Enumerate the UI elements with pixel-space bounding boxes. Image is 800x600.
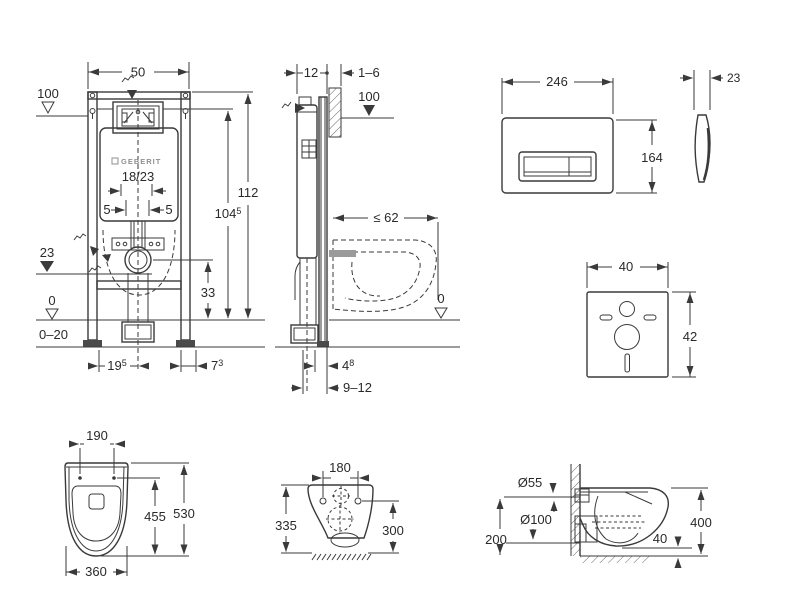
- floor-section: [580, 557, 650, 564]
- frame-side-linework: [275, 88, 460, 392]
- level-zero-side: 0: [435, 291, 447, 318]
- brand-label: GEBERIT: [121, 157, 161, 166]
- installation-diagram: GEBERIT 50 100 18/23 5 5: [0, 0, 800, 600]
- dim-plate-depth: 23: [680, 70, 741, 110]
- svg-text:195: 195: [107, 358, 126, 373]
- svg-text:18/23: 18/23: [122, 169, 155, 184]
- svg-text:530: 530: [173, 506, 195, 521]
- dim-drain-level: 200: [485, 499, 507, 555]
- dim-mat-width: 40: [587, 259, 668, 288]
- insert-plate-icon: [282, 102, 291, 108]
- technical-drawing-canvas: GEBERIT 50 100 18/23 5 5: [0, 0, 800, 600]
- dim-frame-width: 50: [88, 62, 189, 89]
- wc-rear-linework: [308, 485, 373, 560]
- wc-top-linework: [65, 463, 128, 556]
- adjust-arrow-icon: [102, 254, 111, 262]
- svg-text:5: 5: [165, 202, 172, 217]
- svg-text:40: 40: [653, 531, 667, 546]
- dim-wall-holes: 180: [313, 460, 368, 497]
- svg-text:12: 12: [304, 65, 318, 80]
- dim-frame-depth: 12: [284, 64, 329, 94]
- dim-depth-inner: 455: [117, 478, 166, 554]
- dim-mat-height: 42: [672, 292, 697, 377]
- svg-text:455: 455: [144, 509, 166, 524]
- finished-wall-section: [329, 88, 341, 137]
- dim-rim-height: 400: [671, 488, 712, 554]
- svg-text:≤ 62: ≤ 62: [373, 210, 398, 225]
- wc-rear-view: 180 335 300: [275, 460, 404, 560]
- sound-mat-view: 40 42: [587, 259, 697, 377]
- svg-text:Ø100: Ø100: [520, 512, 552, 527]
- svg-text:400: 400: [690, 515, 712, 530]
- dim-flush-diameter: Ø55: [518, 475, 553, 493]
- level-plate-height-side: 100: [341, 89, 394, 118]
- svg-text:73: 73: [211, 358, 223, 373]
- svg-text:50: 50: [131, 65, 145, 80]
- svg-text:246: 246: [546, 74, 568, 89]
- svg-text:33: 33: [201, 285, 215, 300]
- svg-text:Ø55: Ø55: [518, 475, 543, 490]
- svg-text:23: 23: [727, 71, 741, 85]
- wc-top-view: 190 455 530 360: [65, 428, 195, 579]
- svg-text:42: 42: [683, 329, 697, 344]
- dim-flush-pipe: 18/23: [108, 169, 166, 196]
- flush-bend-stub: [329, 250, 356, 257]
- level-zero-front: 0: [46, 293, 58, 319]
- svg-text:112: 112: [238, 185, 259, 200]
- dim-floor-range: 0–20: [39, 327, 68, 342]
- dim-plate-height: 164: [616, 120, 663, 193]
- level-plate-height: 100: [36, 86, 88, 116]
- svg-text:40: 40: [619, 259, 633, 274]
- svg-text:100: 100: [358, 89, 380, 104]
- svg-text:300: 300: [382, 523, 404, 538]
- svg-text:335: 335: [275, 518, 297, 533]
- flush-plate-linework: [502, 115, 710, 193]
- flush-plate-view: 246 164 23: [502, 70, 741, 193]
- svg-text:5: 5: [103, 202, 110, 217]
- svg-text:164: 164: [641, 150, 663, 165]
- svg-text:0: 0: [437, 291, 444, 306]
- svg-text:23: 23: [40, 245, 54, 260]
- sound-mat-linework: [587, 292, 668, 377]
- svg-text:9–12: 9–12: [343, 380, 372, 395]
- dim-height-left: 335: [275, 485, 312, 553]
- frame-front-view: GEBERIT 50 100 18/23 5 5: [36, 62, 265, 373]
- dim-wall-thickness: 1–6: [341, 64, 380, 86]
- svg-text:1045: 1045: [215, 206, 242, 221]
- wc-side-view: Ø55 Ø100 200 400 40: [485, 464, 712, 566]
- svg-text:190: 190: [86, 428, 108, 443]
- svg-text:100: 100: [37, 86, 59, 101]
- svg-text:360: 360: [85, 564, 107, 579]
- frame-side-view: 12 1–6 100 ≤ 62 0 48: [275, 64, 460, 395]
- dim-foot-right: 73: [170, 350, 223, 373]
- svg-text:48: 48: [342, 358, 354, 373]
- dim-drain-diameter: Ø100: [520, 502, 554, 540]
- floor-hatch: [312, 554, 371, 560]
- frame-front-linework: [36, 76, 265, 372]
- dim-height-right: 300: [362, 501, 404, 553]
- dim-foot-left: 195: [88, 350, 148, 373]
- svg-text:200: 200: [485, 532, 507, 547]
- adjust-icon: [89, 266, 101, 272]
- svg-text:0: 0: [48, 293, 55, 308]
- svg-text:1–6: 1–6: [358, 65, 380, 80]
- dim-outlet-range: 9–12: [291, 350, 372, 395]
- adjust-icon: [74, 234, 86, 240]
- insert-plate-arrow-icon: [127, 90, 137, 99]
- svg-text:180: 180: [329, 460, 351, 475]
- dim-plate-width: 246: [502, 74, 613, 114]
